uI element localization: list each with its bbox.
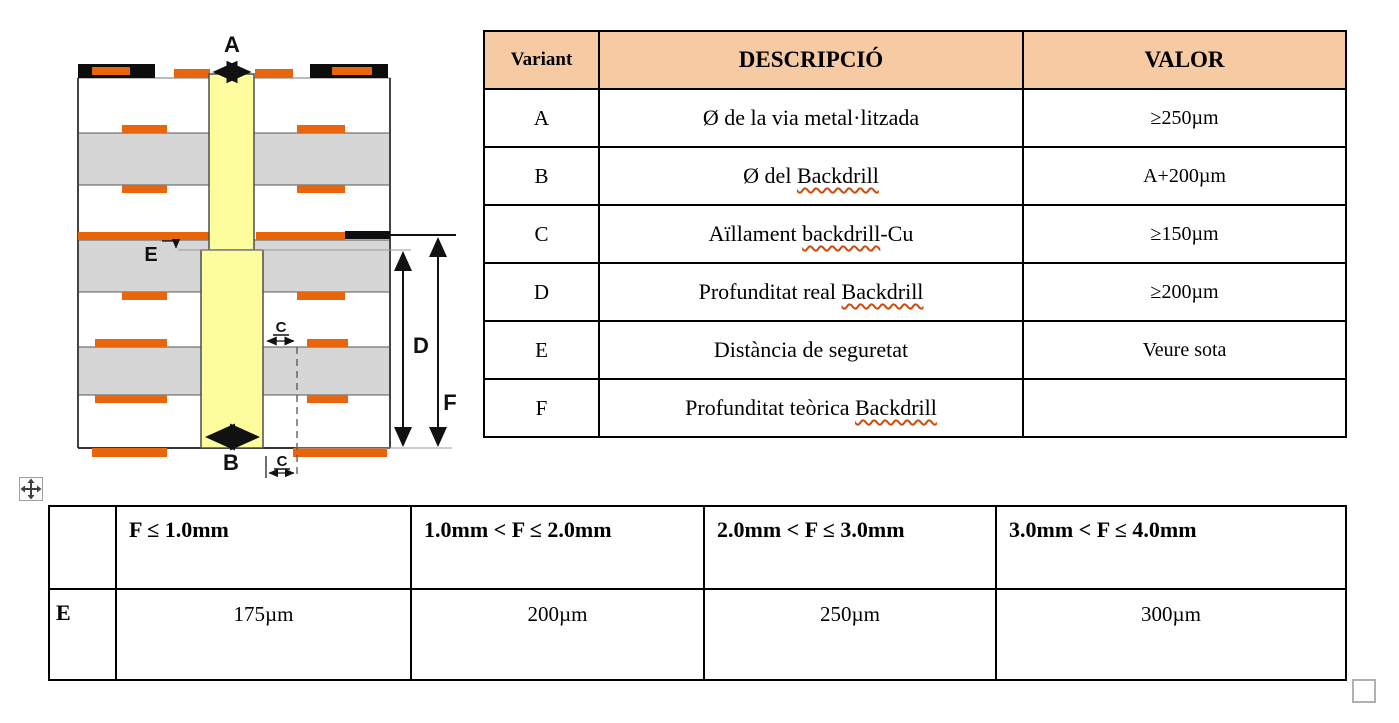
table-resize-handle[interactable]	[1352, 679, 1376, 703]
backdrill-hole	[201, 250, 263, 448]
safety-distance-table: F ≤ 1.0mm1.0mm < F ≤ 2.0mm2.0mm < F ≤ 3.…	[48, 505, 1347, 681]
f-range-header: 1.0mm < F ≤ 2.0mm	[411, 506, 704, 589]
spec-header-row: Variant DESCRIPCIÓ VALOR	[484, 31, 1346, 89]
descripcio-text: Ø del	[743, 163, 797, 188]
descripcio-text: Profunditat teòrica	[685, 395, 855, 420]
dim-label-f: F	[443, 390, 456, 415]
e-value-cell: 175µm	[116, 589, 411, 680]
via-top-pad	[174, 69, 210, 78]
variant-cell: B	[484, 147, 599, 205]
e-table-corner-cell	[49, 506, 116, 589]
e-value-cell: 300µm	[996, 589, 1346, 680]
valor-cell	[1023, 379, 1346, 437]
dim-label-e: E	[144, 244, 157, 266]
spec-row: CAïllament backdrill-Cu≥150µm	[484, 205, 1346, 263]
descripcio-cell: Ø del Backdrill	[599, 147, 1023, 205]
misspelled-word: Backdrill	[797, 163, 879, 188]
valor-cell: ≥200µm	[1023, 263, 1346, 321]
variant-cell: A	[484, 89, 599, 147]
column-header-valor: VALOR	[1023, 31, 1346, 89]
spec-row: FProfunditat teòrica Backdrill	[484, 379, 1346, 437]
spec-row: AØ de la via metal·litzada≥250µm	[484, 89, 1346, 147]
move-cross-icon	[20, 478, 42, 500]
descripcio-cell: Profunditat teòrica Backdrill	[599, 379, 1023, 437]
e-value-cell: 250µm	[704, 589, 996, 680]
pcb-backdrill-diagram: A B C C D E F	[0, 0, 480, 495]
descripcio-cell: Aïllament backdrill-Cu	[599, 205, 1023, 263]
misspelled-word: Backdrill	[842, 279, 924, 304]
via-top-pad	[255, 69, 293, 78]
descripcio-text: Aïllament	[709, 221, 802, 246]
column-header-variant: Variant	[484, 31, 599, 89]
misspelled-word: Backdrill	[855, 395, 937, 420]
variant-cell: C	[484, 205, 599, 263]
backdrill-spec-table: Variant DESCRIPCIÓ VALOR AØ de la via me…	[483, 30, 1347, 438]
spec-row: EDistància de seguretatVeure sota	[484, 321, 1346, 379]
e-table-header-row: F ≤ 1.0mm1.0mm < F ≤ 2.0mm2.0mm < F ≤ 3.…	[49, 506, 1346, 589]
f-range-header: 2.0mm < F ≤ 3.0mm	[704, 506, 996, 589]
descripcio-text: -Cu	[880, 221, 913, 246]
valor-cell: Veure sota	[1023, 321, 1346, 379]
e-row-label: E	[49, 589, 116, 680]
column-header-descripcio: DESCRIPCIÓ	[599, 31, 1023, 89]
e-table-value-row: E175µm200µm250µm300µm	[49, 589, 1346, 680]
table-move-handle[interactable]	[19, 477, 43, 501]
descripcio-cell: Distància de seguretat	[599, 321, 1023, 379]
descripcio-text: Ø de la via metal·litzada	[703, 105, 919, 130]
valor-cell: ≥250µm	[1023, 89, 1346, 147]
descripcio-cell: Ø de la via metal·litzada	[599, 89, 1023, 147]
spec-row: DProfunditat real Backdrill≥200µm	[484, 263, 1346, 321]
valor-cell: A+200µm	[1023, 147, 1346, 205]
e-value-cell: 200µm	[411, 589, 704, 680]
valor-cell: ≥150µm	[1023, 205, 1346, 263]
descripcio-text: Distància de seguretat	[714, 337, 908, 362]
spec-table-body: AØ de la via metal·litzada≥250µmBØ del B…	[484, 89, 1346, 437]
dim-label-c-mid: C	[276, 319, 287, 336]
variant-cell: D	[484, 263, 599, 321]
dim-label-b: B	[223, 450, 239, 475]
descripcio-text: Profunditat real	[699, 279, 842, 304]
dim-label-a: A	[224, 32, 240, 57]
variant-cell: F	[484, 379, 599, 437]
f-range-header: F ≤ 1.0mm	[116, 506, 411, 589]
spec-row: BØ del BackdrillA+200µm	[484, 147, 1346, 205]
descripcio-cell: Profunditat real Backdrill	[599, 263, 1023, 321]
bottom-copper-layer	[92, 448, 387, 457]
dim-label-c-bot: C	[277, 453, 288, 470]
via-barrel	[209, 74, 254, 250]
misspelled-word: backdrill	[802, 221, 880, 246]
f-range-header: 3.0mm < F ≤ 4.0mm	[996, 506, 1346, 589]
variant-cell: E	[484, 321, 599, 379]
dim-label-d: D	[413, 333, 429, 358]
